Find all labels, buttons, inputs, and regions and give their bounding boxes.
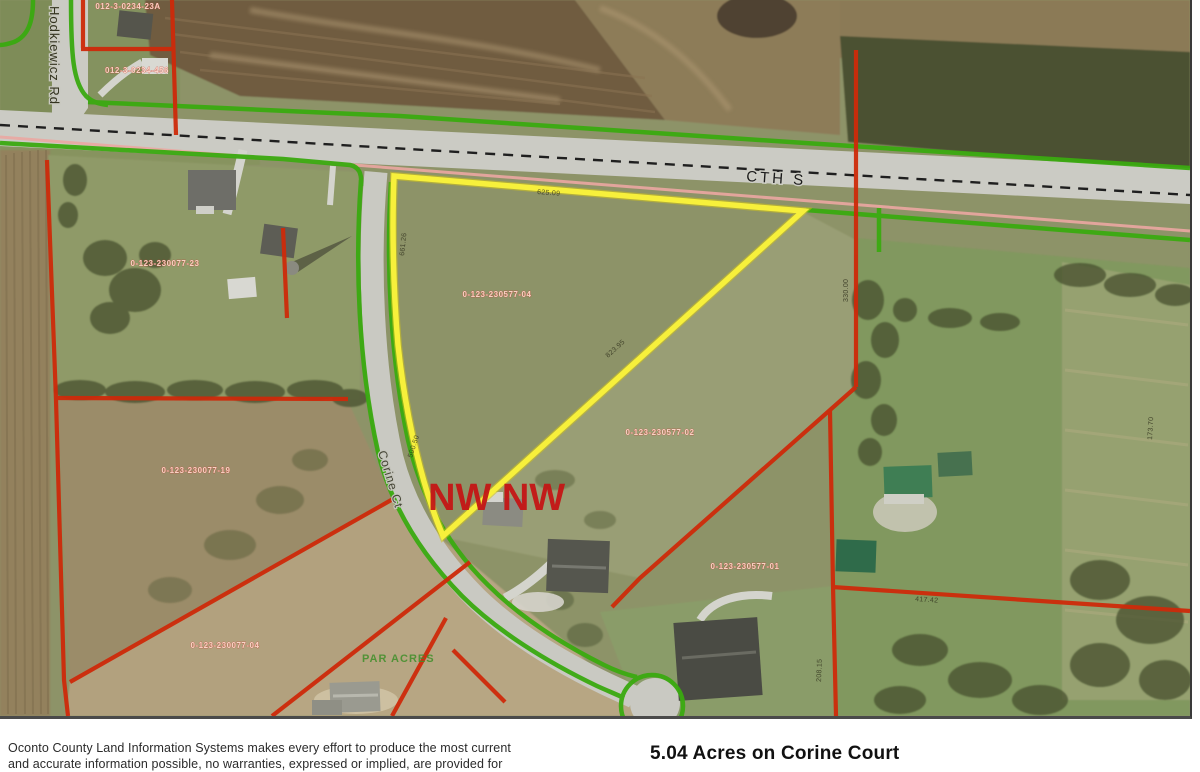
parcel-id-label: 0-123-230577-04 bbox=[463, 290, 532, 299]
road-label-hodkiewicz: Hodkiewicz Rd bbox=[47, 6, 62, 105]
dimension-label: 330.00 bbox=[843, 279, 850, 302]
dimension-label: 173.70 bbox=[1147, 417, 1155, 441]
parcel-id-label: 0-123-230077-23 bbox=[131, 259, 200, 268]
parcel-id-label: 0-123-230577-02 bbox=[626, 428, 695, 437]
parcel-id-label: 012-3-0234-456 bbox=[105, 66, 169, 75]
aerial-map-image: Hodkiewicz Rd CTH S Corine Ct NW NW PAR … bbox=[0, 0, 1190, 716]
parcel-id-label: 012-3-0234-23A bbox=[95, 2, 160, 11]
parcel-id-label: 0-123-230077-19 bbox=[162, 466, 231, 475]
section-quarter-label: NW NW bbox=[428, 477, 565, 519]
dimension-label: 208.15 bbox=[816, 659, 824, 682]
parcel-id-label: 0-123-230577-01 bbox=[711, 562, 780, 571]
disclaimer-line-1: Oconto County Land Information Systems m… bbox=[8, 740, 568, 756]
map-title: 5.04 Acres on Corine Court bbox=[650, 743, 899, 765]
subdivision-label: PAR ACRES bbox=[362, 653, 435, 665]
disclaimer-line-2: and accurate information possible, no wa… bbox=[8, 756, 568, 772]
disclaimer-text: Oconto County Land Information Systems m… bbox=[8, 740, 568, 772]
footer: Oconto County Land Information Systems m… bbox=[0, 719, 1200, 769]
parcel-id-label: 0-123-230077-04 bbox=[191, 641, 260, 650]
map-area: Hodkiewicz Rd CTH S Corine Ct NW NW PAR … bbox=[0, 0, 1192, 719]
